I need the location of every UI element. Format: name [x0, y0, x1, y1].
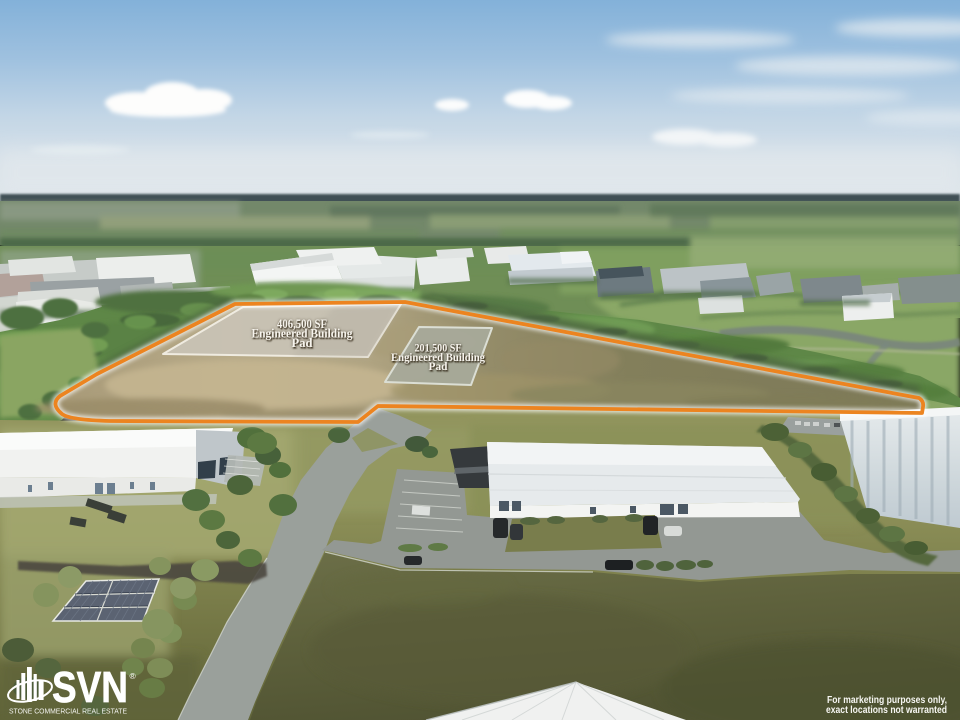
svg-text:®: ® — [130, 671, 137, 681]
svg-text:SVN: SVN — [52, 663, 128, 712]
svg-text:STONE COMMERCIAL REAL ESTATE: STONE COMMERCIAL REAL ESTATE — [9, 707, 127, 716]
svg-text:exact locations not warranted: exact locations not warranted — [826, 705, 947, 716]
svg-text:Pad: Pad — [429, 359, 448, 373]
svg-text:Pad: Pad — [292, 335, 314, 350]
